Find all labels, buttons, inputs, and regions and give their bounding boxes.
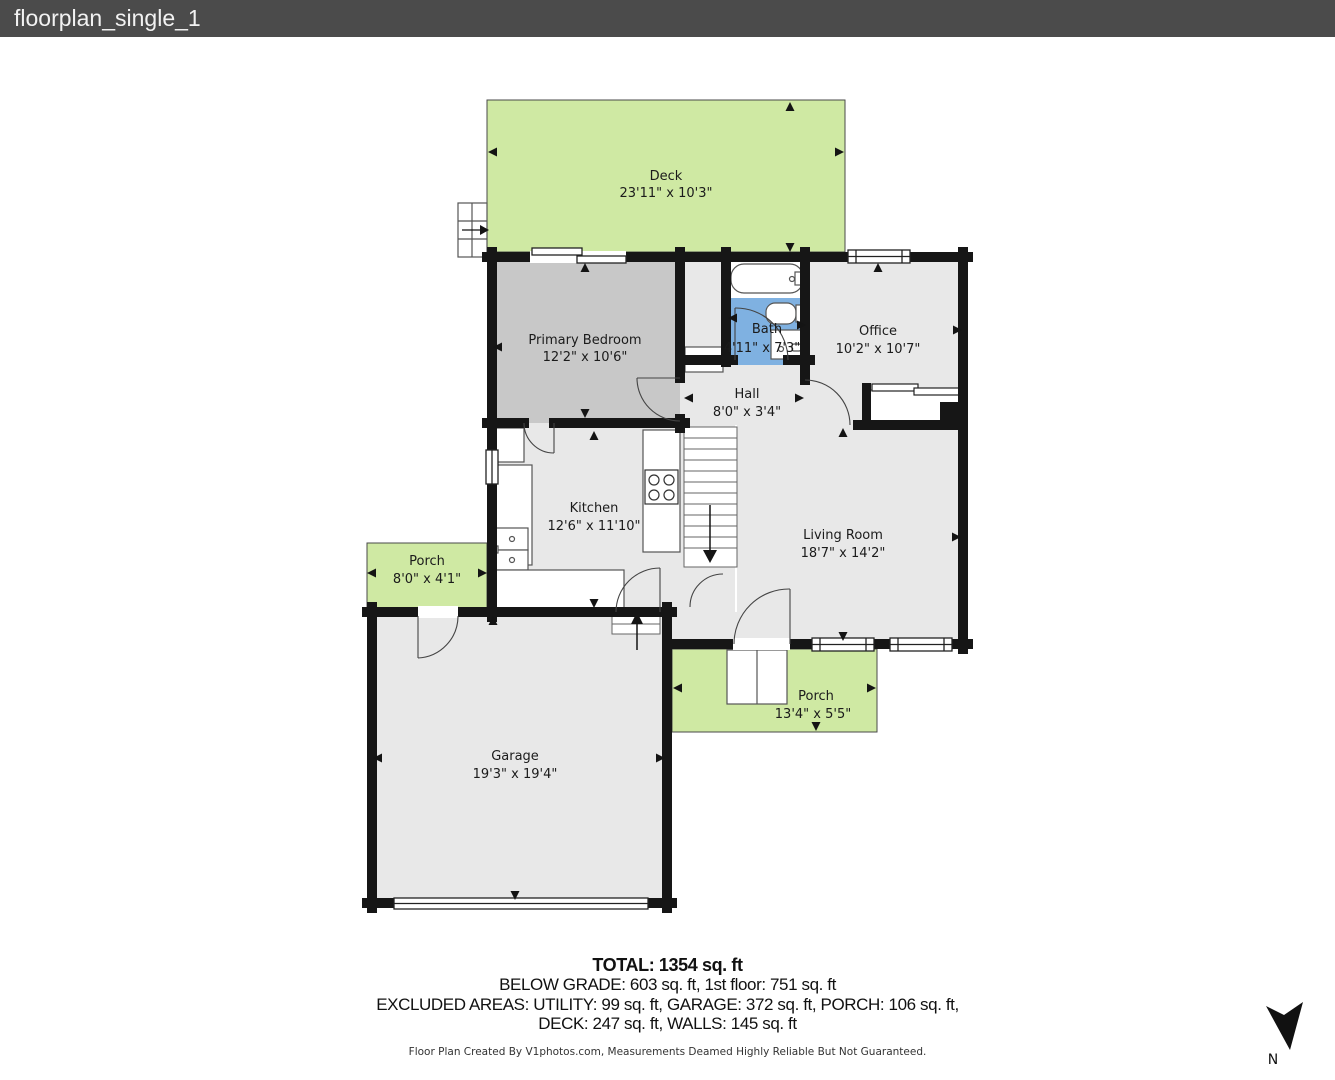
front-porch-label: Porch: [798, 689, 834, 704]
closet-wall-stub: [862, 383, 871, 428]
side-porch-dims: 8'0" x 4'1": [393, 572, 461, 587]
stove: [645, 470, 678, 504]
tub-knob: [790, 277, 795, 282]
summary-line-3: DECK: 247 sq. ft, WALLS: 145 sq. ft: [0, 1014, 1335, 1034]
bath-label: Bath: [752, 322, 782, 337]
fireplace: [940, 402, 963, 427]
hall-label: Hall: [735, 387, 760, 402]
office-window: [848, 250, 910, 263]
summary-line-1: BELOW GRADE: 603 sq. ft, 1st floor: 751 …: [0, 975, 1335, 995]
deck-dims: 23'11" x 10'3": [620, 186, 713, 201]
garage-dims: 19'3" x 19'4": [473, 767, 558, 782]
credit-line: Floor Plan Created By V1photos.com, Meas…: [0, 1046, 1335, 1058]
summary-total: TOTAL: 1354 sq. ft: [0, 955, 1335, 975]
kitchen-dims: 12'6" x 11'10": [548, 519, 641, 534]
hall-dims: 8'0" x 3'4": [713, 405, 781, 420]
office-dims: 10'2" x 10'7": [836, 342, 921, 357]
living-window-2: [890, 638, 952, 651]
garage-label: Garage: [491, 749, 539, 764]
office-label: Office: [859, 324, 897, 339]
window-title: floorplan_single_1: [14, 0, 201, 37]
primary-bedroom-dims: 12'2" x 10'6": [543, 350, 628, 365]
basement-stairs: [684, 427, 737, 567]
floorplan-canvas: Deck 23'11" x 10'3" Primary Bedroom 12'2…: [0, 0, 1335, 1080]
title-bar: floorplan_single_1: [0, 0, 1335, 37]
front-porch-dims: 13'4" x 5'5": [775, 707, 851, 722]
screenshot-root: floorplan_single_1: [0, 0, 1335, 1080]
living-room-label: Living Room: [803, 528, 883, 543]
deck-stairs: [458, 203, 489, 257]
side-porch-label: Porch: [409, 554, 445, 569]
deck-label: Deck: [650, 169, 683, 184]
kitchen-window: [486, 450, 498, 484]
living-room-dims: 18'7" x 14'2": [801, 546, 886, 561]
bath-dims: 4'11" x 7'3": [724, 341, 800, 356]
garage-door: [394, 898, 648, 909]
summary-line-2: EXCLUDED AREAS: UTILITY: 99 sq. ft, GARA…: [0, 995, 1335, 1015]
kitchen-label: Kitchen: [570, 501, 619, 516]
kitchen-counter-bottom: [494, 570, 624, 608]
front-steps: [727, 650, 787, 704]
primary-bedroom-label: Primary Bedroom: [528, 333, 641, 348]
area-summary: TOTAL: 1354 sq. ft BELOW GRADE: 603 sq. …: [0, 955, 1335, 1034]
